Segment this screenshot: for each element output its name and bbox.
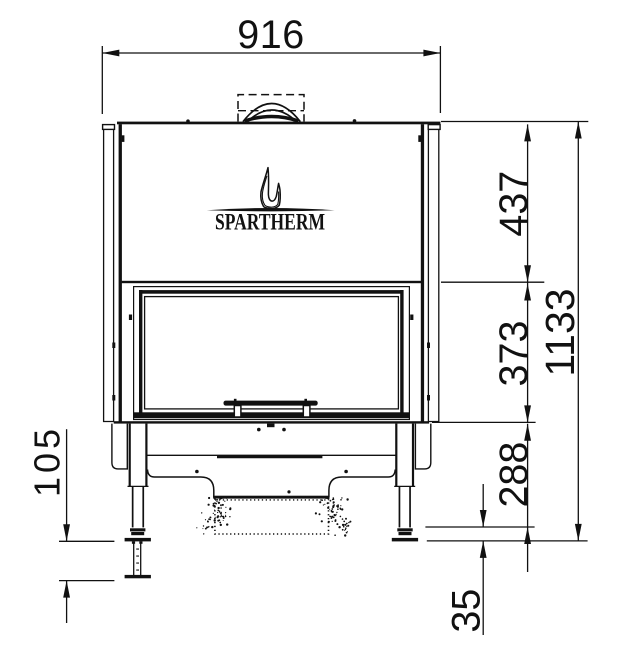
svg-text:105: 105 xyxy=(27,425,68,497)
svg-text:SPARTHERM: SPARTHERM xyxy=(215,210,325,236)
svg-text:1133: 1133 xyxy=(537,288,583,376)
svg-text:373: 373 xyxy=(492,321,536,387)
svg-text:288: 288 xyxy=(492,442,536,508)
svg-text:35: 35 xyxy=(445,589,489,633)
svg-text:916: 916 xyxy=(237,13,304,57)
svg-text:437: 437 xyxy=(492,171,536,237)
